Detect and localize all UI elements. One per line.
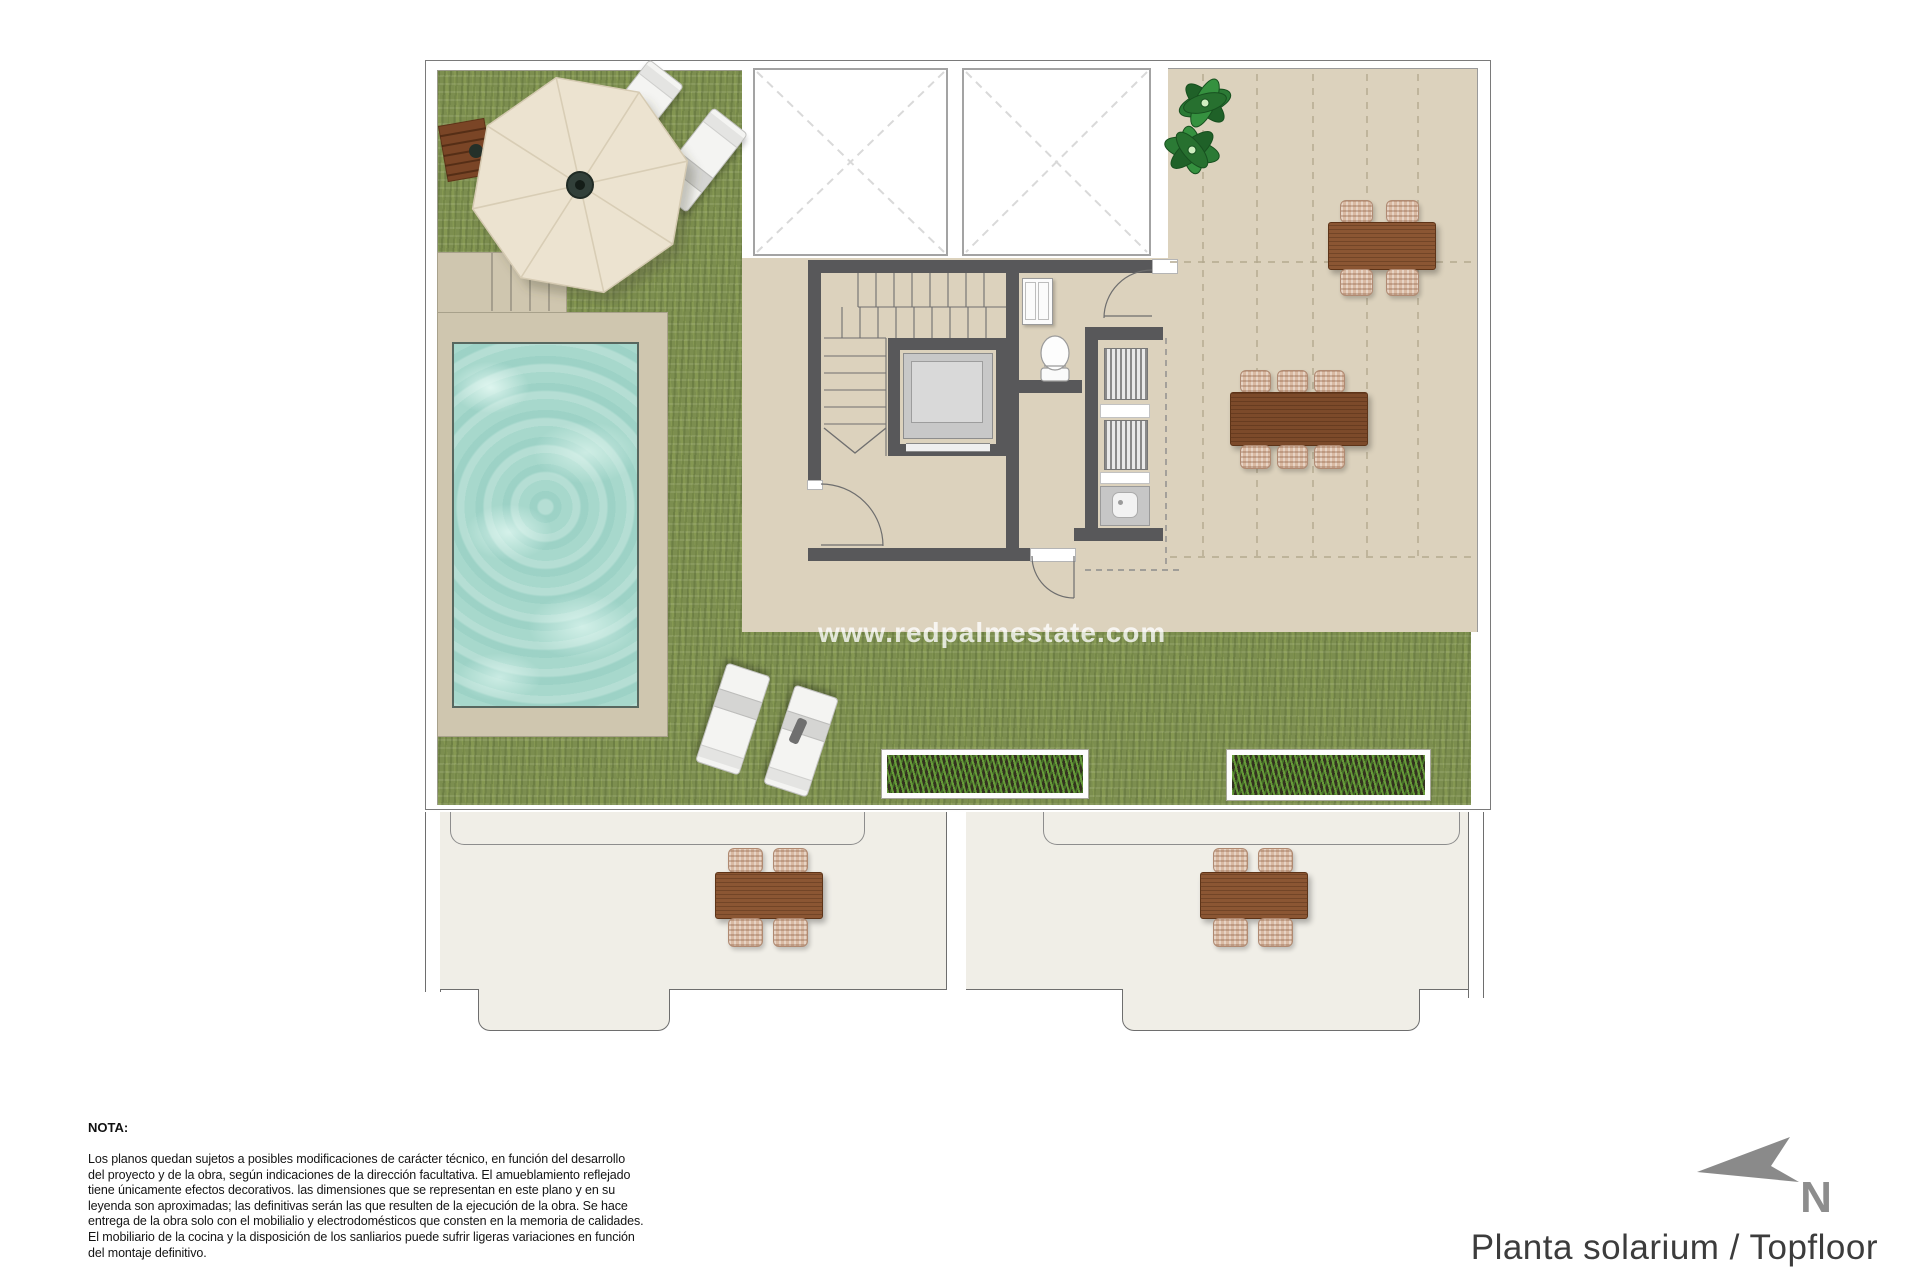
note-heading: NOTA:	[88, 1120, 128, 1135]
compass-n-label: N	[1800, 1173, 1832, 1222]
umbrella-canopy	[462, 67, 697, 302]
parasol-umbrella	[438, 67, 705, 312]
umbrella-pole-joint	[469, 144, 483, 158]
floor-plan-page: N www.redpalmestate.com NOTA: Los planos…	[0, 0, 1920, 1280]
north-arrow-icon: N	[1697, 1137, 1832, 1222]
page-title: Planta solarium / Topfloor	[1471, 1228, 1878, 1268]
note-body: Los planos quedan sujetos a posibles mod…	[88, 1152, 728, 1261]
plant	[1162, 75, 1234, 175]
watermark: www.redpalmestate.com	[818, 617, 1166, 649]
